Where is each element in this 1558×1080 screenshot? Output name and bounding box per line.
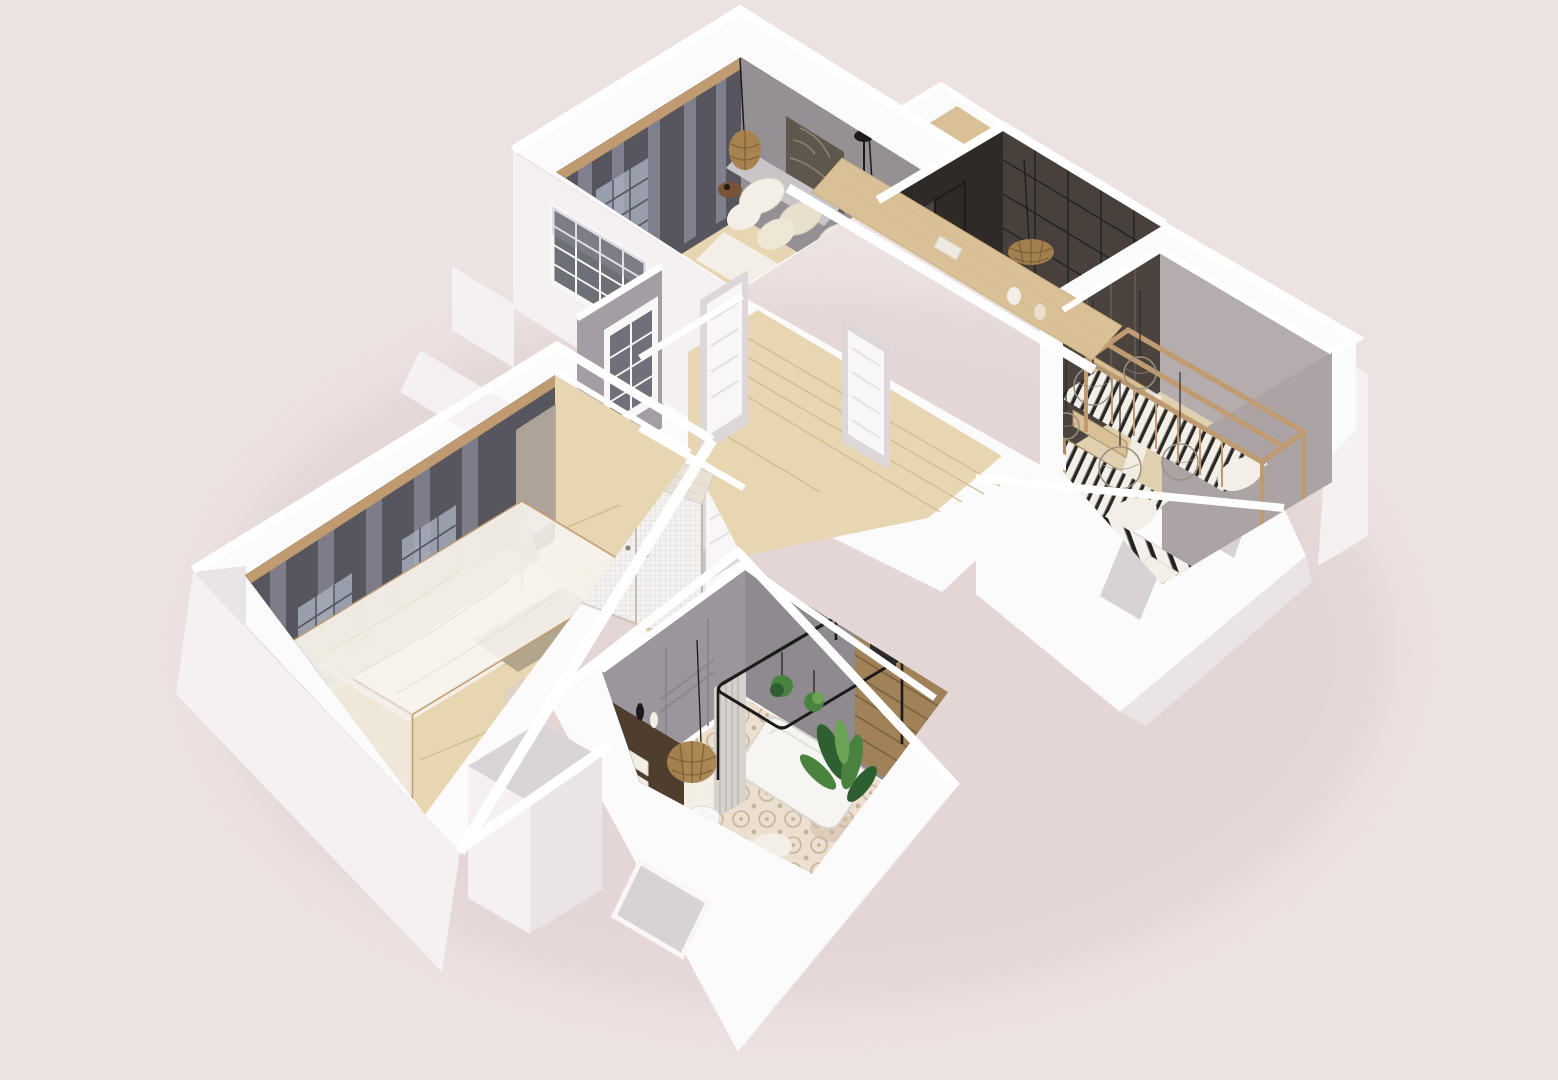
curtain-fold bbox=[716, 70, 726, 224]
black-bottle bbox=[636, 703, 644, 721]
curtain-fold bbox=[684, 88, 696, 244]
console-vase bbox=[1034, 304, 1046, 320]
hanging-plant-light bbox=[812, 692, 824, 704]
wardrobe-knob bbox=[626, 546, 631, 551]
hanging-plant-shade bbox=[770, 683, 784, 697]
stool-top bbox=[718, 182, 742, 198]
floor-plan-stage bbox=[0, 0, 1558, 1080]
side-stool bbox=[718, 182, 742, 198]
stool-decor bbox=[724, 184, 730, 190]
console-vase bbox=[1007, 287, 1021, 305]
white-bottle bbox=[650, 712, 658, 728]
floor-plan-render bbox=[0, 0, 1558, 1080]
